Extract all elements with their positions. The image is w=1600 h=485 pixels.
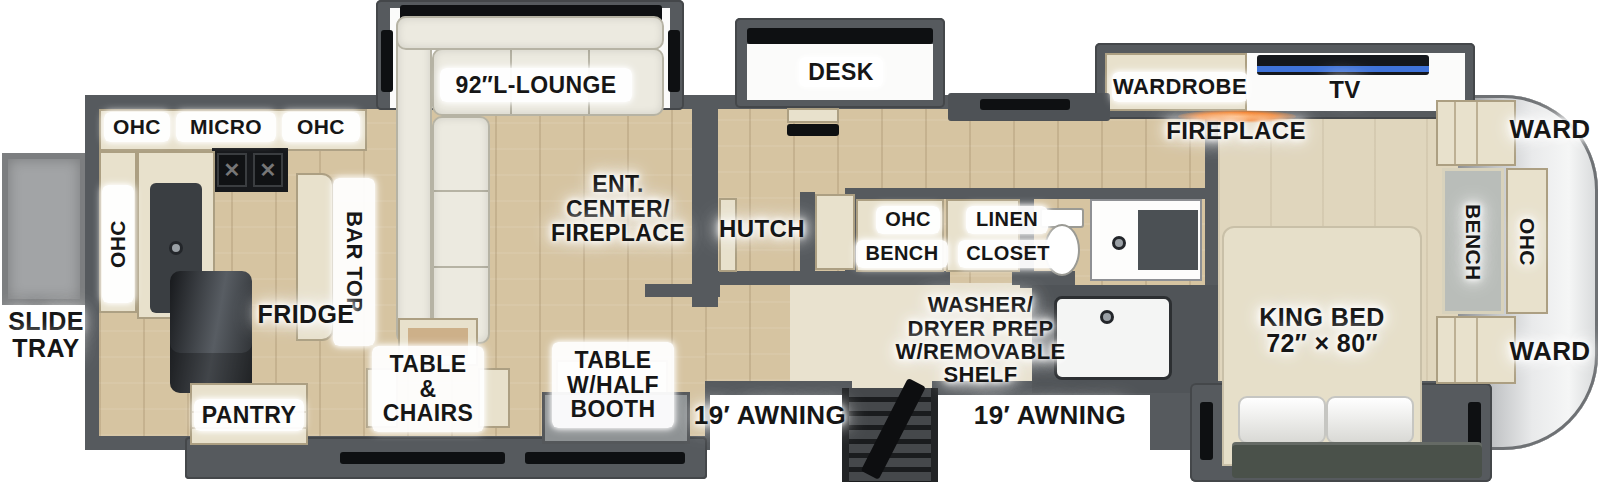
- tv-screen: [1257, 55, 1429, 75]
- lounge-label: 92″L-LOUNGE: [440, 68, 632, 102]
- pillow-right: [1326, 396, 1414, 444]
- ohc-left-label: OHC: [104, 112, 170, 142]
- dinette-window-right: [525, 452, 685, 464]
- lounge-window-right: [668, 30, 680, 92]
- hutch-cabinet-right: [815, 194, 855, 270]
- slide-tray: [2, 153, 86, 305]
- fridge-label: FRIDGE: [252, 298, 360, 330]
- hutch-wall: [705, 271, 950, 285]
- rear-ohc-label: OHC: [1510, 200, 1544, 284]
- bath-bench-label: BENCH: [856, 240, 948, 268]
- ward-top-label: WARD: [1502, 114, 1598, 146]
- desk-cabinet-shelf: [787, 124, 839, 136]
- bath-ohc-label: OHC: [876, 206, 940, 234]
- rear-bench-label: BENCH: [1456, 186, 1490, 298]
- awning-right-label: 19′ AWNING: [972, 400, 1128, 432]
- fireplace-label: FIREPLACE: [1156, 116, 1316, 146]
- pantry-label: PANTRY: [194, 399, 304, 431]
- wardrobe-label: WARDROBE: [1112, 72, 1248, 102]
- pillow-left: [1238, 396, 1326, 444]
- ent-center-wall-stub: [645, 284, 720, 297]
- desk-window: [747, 28, 933, 44]
- closet-label: CLOSET: [958, 240, 1058, 268]
- bed-footboard: [1232, 442, 1482, 478]
- closet-divider-wall: [1020, 188, 1034, 288]
- vanity-cabinet: [1138, 210, 1198, 270]
- sink-faucet-icon: [169, 241, 183, 255]
- desk-label: DESK: [799, 57, 883, 87]
- king-bed-label: KING BED 72″ × 80″: [1227, 300, 1417, 360]
- floorplan-canvas: SLIDE TRAY 92″L-LOUNGE DESK WARDROBE TV …: [0, 0, 1600, 485]
- dinette-window-left: [340, 452, 505, 464]
- sofa-left-arm: [396, 16, 432, 344]
- stove-burner-icon: ✕: [217, 153, 247, 187]
- hutch-label: HUTCH: [712, 214, 812, 244]
- table-booth-label: TABLE W/HALF BOOTH: [552, 342, 674, 428]
- king-slide-window-left: [1200, 402, 1213, 460]
- ohc-right-label: OHC: [282, 112, 360, 142]
- micro-label: MICRO: [176, 112, 276, 142]
- linen-label: LINEN: [966, 206, 1048, 234]
- lounge-window-left: [381, 30, 393, 92]
- sofa-back-top: [396, 16, 664, 50]
- slide-tray-label: SLIDE TRAY: [0, 308, 92, 361]
- vanity-faucet-icon: [1112, 236, 1126, 250]
- washer-label: WASHER/ DRYER PREP W/REMOVABLE SHELF: [888, 290, 1073, 390]
- fridge: [170, 271, 252, 393]
- stove-burner-icon: ✕: [253, 153, 283, 187]
- ward-bottom-label: WARD: [1502, 336, 1598, 368]
- tub-faucet-icon: [1100, 310, 1114, 324]
- ent-center-label: ENT. CENTER/ FIREPLACE: [538, 166, 698, 252]
- stove: ✕ ✕: [212, 148, 288, 192]
- sofa-seats-left: [432, 116, 490, 344]
- awning-left-label: 19′ AWNING: [692, 400, 848, 432]
- tv-label: TV: [1318, 76, 1372, 104]
- ohc-wall-label: OHC: [102, 185, 134, 303]
- table-chairs-label: TABLE & CHAIRS: [372, 346, 484, 432]
- desk-cabinet: [787, 108, 839, 123]
- dresser-inset: [980, 99, 1070, 110]
